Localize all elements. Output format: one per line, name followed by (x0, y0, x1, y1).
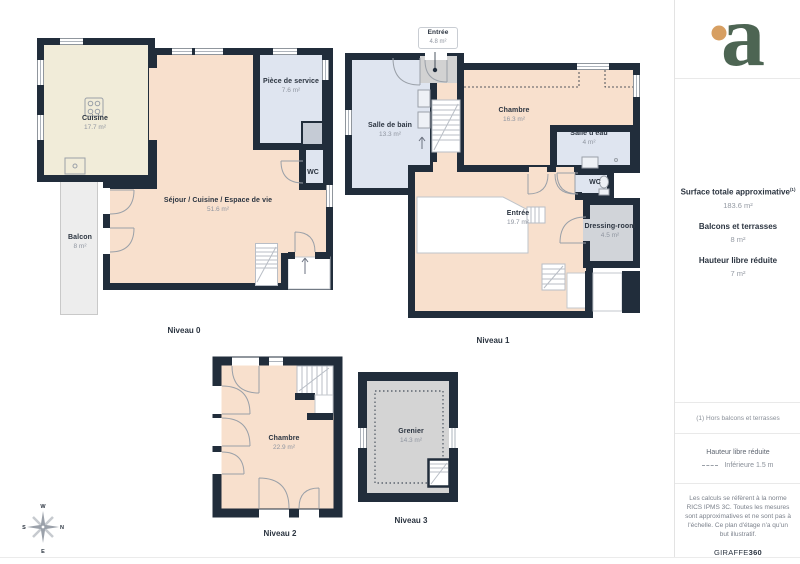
compass-label-bottom: E (41, 549, 45, 555)
caption-niveau-1: Niveau 1 (477, 336, 510, 345)
disclaimer-text: Les calculs se réfèrent à la norme RICS … (684, 494, 792, 539)
legend-title: Hauteur libre réduite (706, 449, 769, 456)
callout-dot (433, 68, 437, 72)
room-label-entree: Entrée 19.7 m² (507, 210, 529, 226)
wall-segment (585, 271, 593, 313)
stairs-icon (429, 460, 450, 487)
recess-area (593, 273, 622, 311)
compass-rose: W N E S (16, 498, 70, 563)
legend-item: Inférieure 1.5 m (724, 462, 773, 469)
stat-label: Balcons et terrasses (675, 222, 800, 231)
caption-niveau-2: Niveau 2 (264, 529, 297, 538)
stat-surface-totale: Surface totale approximative(1) 183.6 m² (675, 187, 800, 210)
legend-row: Inférieure 1.5 m (702, 462, 773, 469)
room-label-wc-0: WC (307, 169, 319, 176)
stairs-down-icon (542, 264, 565, 290)
info-sidebar: a Surface totale approximative(1) 183.6 … (674, 0, 800, 557)
room-label-wc-1: WC (589, 179, 601, 186)
room-label-chambre-2: Chambre 22.9 m² (268, 435, 299, 451)
page-bottom-divider (0, 557, 800, 558)
shower-icon (302, 122, 323, 145)
entry-callout: Entrée 4.8 m² (418, 27, 458, 49)
floorplan-niveau-0 (33, 28, 337, 336)
kitchen-opening-patch (149, 68, 160, 140)
compass-label-right: N (60, 525, 64, 531)
wall-segment (315, 252, 330, 259)
room-label-sejour: Séjour / Cuisine / Espace de vie 51.6 m² (164, 197, 272, 213)
agency-logo: a (675, 0, 800, 79)
room-label-salle-de-bain: Salle de bain 13.3 m² (368, 122, 412, 138)
room-label-cuisine: Cuisine 17.7 m² (82, 115, 108, 131)
wall-segment (622, 271, 640, 313)
wall-opening-patch (433, 162, 457, 176)
wall-segment (288, 252, 295, 259)
caption-niveau-3: Niveau 3 (395, 516, 428, 525)
entry-notch (288, 257, 330, 289)
room-label-grenier: Grenier 14.3 m² (398, 428, 424, 444)
brand-logo: GIRAFFE360 (684, 548, 792, 557)
stat-balcons: Balcons et terrasses 8 m² (675, 222, 800, 244)
stat-label: Surface totale approximative(1) (675, 187, 800, 197)
stairwell-void (567, 273, 587, 308)
compass-center (41, 525, 45, 529)
room-label-dressing: Dressing-room 4.5 m² (584, 223, 635, 239)
logo-letter: a (721, 7, 765, 73)
door-gap (529, 167, 547, 174)
logo-icon: a (708, 7, 768, 73)
room-label-salle-deau: Salle d'eau 4 m² (570, 130, 607, 146)
stat-hauteur-reduite: Hauteur libre réduite 7 m² (675, 256, 800, 278)
wall-segment (307, 413, 333, 420)
stat-value: 183.6 m² (675, 201, 800, 210)
compass-label-left: S (22, 525, 26, 531)
room-label-chambre-1: Chambre 16.3 m² (498, 107, 529, 123)
room-label-balcon: Balcon 8 m² (68, 234, 92, 250)
wall-segment (295, 393, 315, 400)
wall-opening-patch (146, 189, 160, 283)
front-door-gap (425, 53, 447, 60)
footnote-marker: (1) (790, 187, 796, 192)
wall-segment (281, 253, 288, 290)
footnote: (1) Hors balcons et terrasses (675, 402, 800, 434)
floorplan-sheet: Cuisine 17.7 m² Séjour / Cuisine / Espac… (0, 0, 800, 564)
compass-icon: W N E S (16, 498, 70, 558)
compass-label-top: W (40, 504, 46, 510)
disclaimer-section: Les calculs se réfèrent à la norme RICS … (675, 483, 800, 557)
niveau-1-drawing (343, 23, 643, 323)
surface-stats: Surface totale approximative(1) 183.6 m²… (675, 79, 800, 278)
stairs-icon (256, 244, 278, 286)
legend: Hauteur libre réduite Inférieure 1.5 m (675, 433, 800, 484)
stair-landing (315, 395, 333, 415)
floorplan-niveau-1 (343, 23, 643, 323)
entry-landing (420, 56, 457, 83)
stairs-up-icon (527, 207, 545, 223)
room-label-piece-de-service: Pièce de service 7.6 m² (263, 78, 319, 94)
stat-label: Hauteur libre réduite (675, 256, 800, 265)
stairs-icon (432, 100, 460, 152)
stat-value: 8 m² (675, 235, 800, 244)
stairs-icon (297, 366, 333, 395)
dashed-line-icon (702, 465, 718, 466)
stat-value: 7 m² (675, 269, 800, 278)
wc-room (303, 147, 327, 187)
door-gap (575, 175, 583, 192)
niveau-0-drawing (33, 28, 337, 336)
caption-niveau-0: Niveau 0 (168, 326, 201, 335)
